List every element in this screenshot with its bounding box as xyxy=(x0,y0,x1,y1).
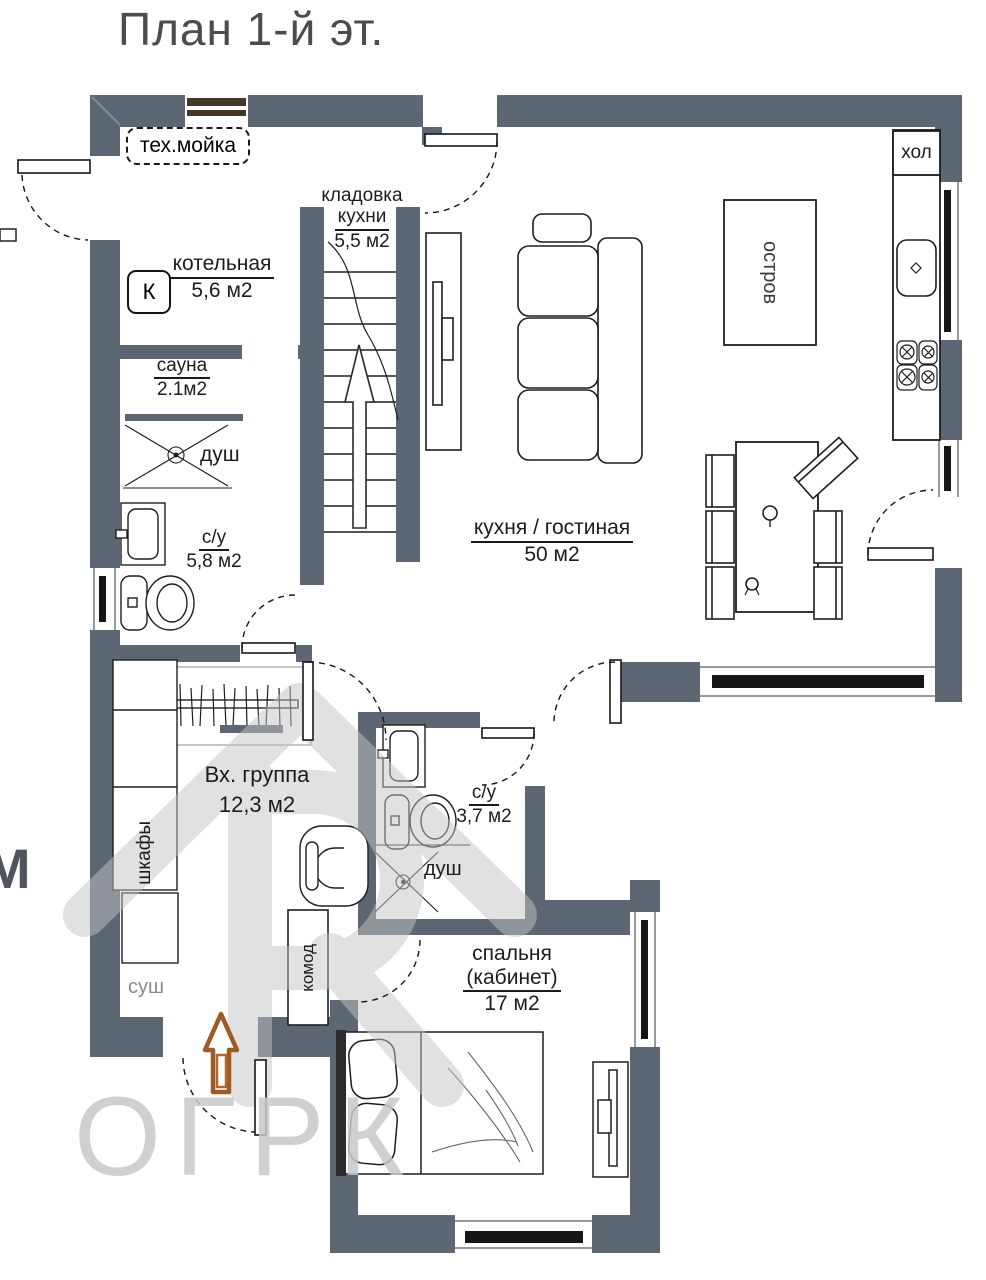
room-label-boiler: котельная 5,6 м2 xyxy=(163,252,281,302)
label-dryer: суш xyxy=(128,976,164,998)
room-name: сауна xyxy=(154,355,210,379)
room-label-wc1: с/у 5,8 м2 xyxy=(180,527,248,573)
window-bedroom-right xyxy=(630,912,660,1047)
room-name: кухни xyxy=(335,206,390,230)
room-area: 50 м2 xyxy=(524,543,579,566)
window-right-2 xyxy=(935,440,962,497)
dryer-box xyxy=(122,893,178,963)
edge-watermark-letter: М xyxy=(0,836,31,901)
door-wc2 xyxy=(482,728,534,785)
top-door-opening xyxy=(423,95,497,127)
window-panoramic xyxy=(700,662,935,702)
dining-chair xyxy=(706,511,734,563)
wall-entry-bottom-left xyxy=(90,1017,163,1057)
sink xyxy=(897,240,936,296)
window-left-wall xyxy=(90,568,120,630)
door-left-exterior xyxy=(18,160,90,240)
room-name: Вх. группа xyxy=(205,762,310,787)
room-area: 3,7 м2 xyxy=(456,806,511,827)
kitchen-counter xyxy=(893,130,940,440)
fridge-label: хол xyxy=(901,142,932,163)
room-name: (кабинет) xyxy=(463,966,560,993)
room-name: кладовка xyxy=(321,185,402,206)
dining-chair xyxy=(706,567,734,619)
wc1-sink xyxy=(116,503,165,565)
room-area: 5,8 м2 xyxy=(186,551,241,572)
room-label-tech: тех.мойка xyxy=(126,127,250,165)
room-name: душ xyxy=(424,858,462,880)
dining-chair xyxy=(814,567,842,619)
tv-console-bedroom xyxy=(593,1062,628,1177)
label-fridge: хол xyxy=(893,131,940,175)
room-label-entry: Вх. группа 12,3 м2 xyxy=(198,760,316,819)
tv-console-living xyxy=(426,233,461,450)
room-label-kitchen: кухня / гостиная 50 м2 xyxy=(463,516,641,566)
vent-stripe xyxy=(187,98,246,106)
room-label-sauna: сауна 2.1м2 xyxy=(143,355,221,401)
room-area: 17 м2 xyxy=(484,992,539,1015)
boiler-corridor-opening xyxy=(242,345,298,359)
dining-chair xyxy=(706,455,734,507)
wc1-toilet xyxy=(121,576,194,630)
door-right-kitchen xyxy=(868,490,933,560)
wc2-door-opening xyxy=(480,712,545,728)
wall-stairs-left xyxy=(300,207,324,585)
label-shower-sauna: душ xyxy=(200,443,240,467)
room-area: 5,5 м2 xyxy=(334,231,389,252)
table-item xyxy=(746,578,758,590)
dryer-label: суш xyxy=(128,976,164,998)
stair-up-arrow xyxy=(345,345,374,528)
room-area: 2.1м2 xyxy=(157,379,207,400)
wardrobe-label: шкафы xyxy=(134,821,155,885)
door-top-kitchen xyxy=(425,134,497,213)
sofa xyxy=(518,214,642,463)
table-item xyxy=(763,506,777,520)
label-dresser: комод xyxy=(288,910,328,1025)
sauna-bench xyxy=(125,414,243,421)
room-label-bedroom: спальня (кабинет) 17 м2 xyxy=(448,942,576,1016)
room-name: с/у xyxy=(199,527,229,551)
room-name: котельная xyxy=(170,252,275,279)
room-name: кухня / гостиная xyxy=(471,516,633,543)
window-bedroom-bottom xyxy=(455,1215,592,1253)
exterior-stub xyxy=(0,229,16,241)
room-name: тех.мойка xyxy=(140,134,236,158)
door-wc1 xyxy=(242,595,295,653)
label-wardrobe: шкафы xyxy=(128,810,162,895)
vent-stripe xyxy=(187,110,246,116)
marker-letter: К xyxy=(143,279,156,305)
room-name: с/у xyxy=(469,782,499,806)
dining-set xyxy=(706,438,858,619)
island-label: остров xyxy=(759,241,781,304)
dining-chair xyxy=(814,511,842,563)
wall-stairs-right xyxy=(396,207,420,562)
wall-bedroom-top xyxy=(545,900,635,935)
room-name: спальня xyxy=(472,942,552,965)
room-name: душ xyxy=(200,443,240,466)
room-area: 12,3 м2 xyxy=(219,792,295,817)
room-label-wc2: с/у 3,7 м2 xyxy=(446,782,522,828)
watermark-text: ОГРК xyxy=(74,1072,418,1201)
left-door-opening xyxy=(90,156,120,240)
boiler-marker: К xyxy=(127,270,171,314)
page-title: План 1-й эт. xyxy=(118,2,384,56)
label-island: остров xyxy=(724,200,816,345)
dresser-label: комод xyxy=(298,944,317,992)
label-shower-wc2: душ xyxy=(424,858,462,880)
door-kitchen-entry xyxy=(554,660,621,723)
staircase xyxy=(324,242,398,532)
room-area: 5,6 м2 xyxy=(191,279,252,302)
armchair xyxy=(300,826,368,906)
floor-plan-page: План 1-й эт. тех.мойка кладовка кухни 5,… xyxy=(0,0,986,1280)
right-door-opening xyxy=(935,497,962,568)
room-label-pantry: кладовка кухни 5,5 м2 xyxy=(312,185,412,252)
